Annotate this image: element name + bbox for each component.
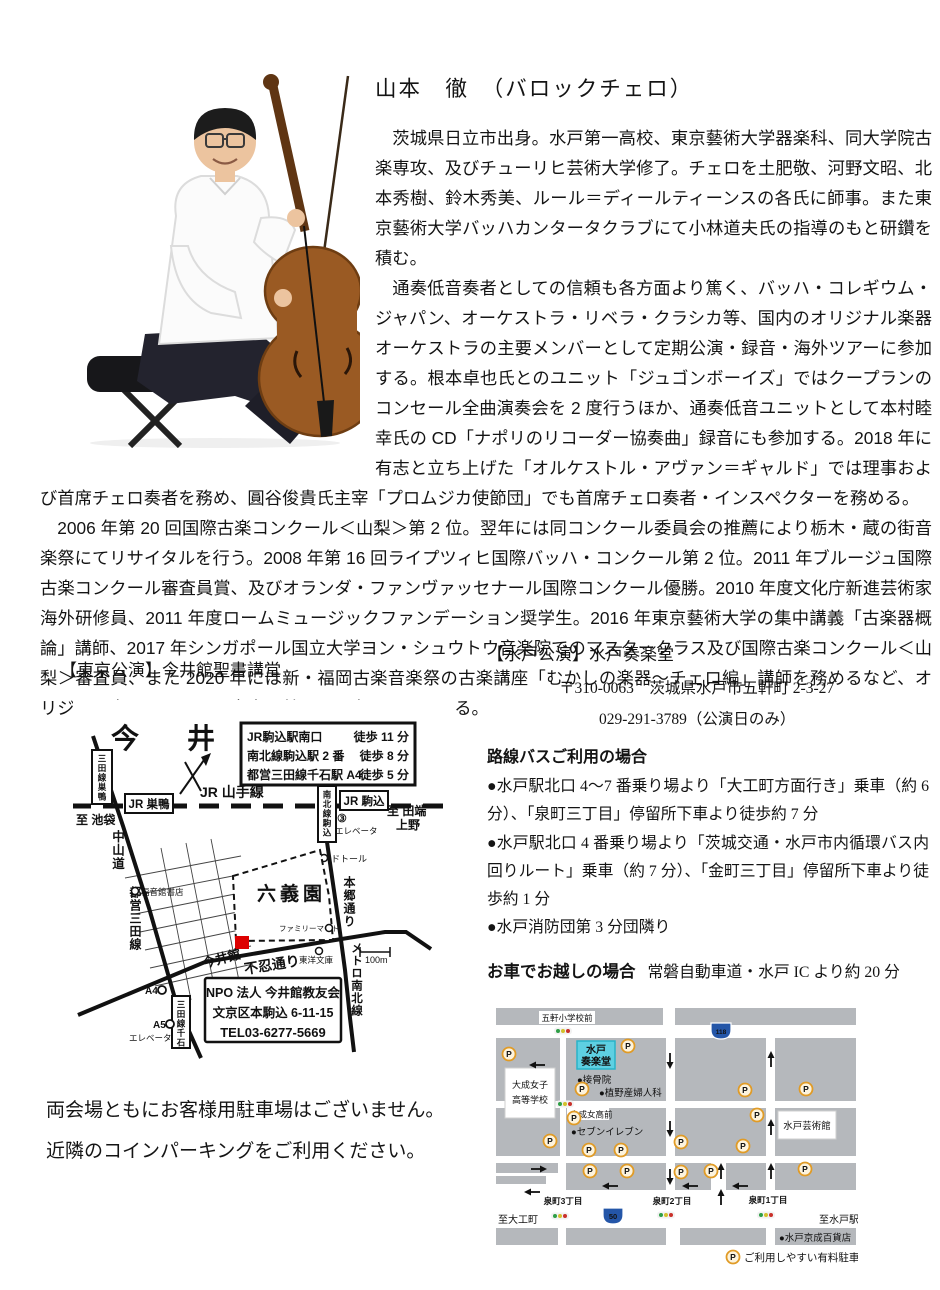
elevator-label: エレベータ	[335, 826, 378, 836]
parking-icon	[727, 1251, 740, 1264]
parking-icon	[584, 1165, 597, 1178]
parking-icon	[737, 1140, 750, 1153]
parking-icon	[544, 1135, 557, 1148]
nanboku-komagome-station: 南北線駒込	[318, 786, 336, 842]
traffic-light-icon	[657, 1212, 675, 1219]
to-ikebukuro-label: 至 池袋	[76, 812, 116, 827]
parking-note-line1: 両会場ともにお客様用駐車場はございません。	[46, 1090, 444, 1131]
hongo-dori-label: 本郷通り	[342, 875, 356, 928]
scale-label: 100m	[365, 955, 388, 965]
bus-stop-label: 五軒小学校前	[541, 1013, 593, 1023]
route-50-shield: 50	[603, 1208, 623, 1224]
jr-sugamo-station: JR 巣鴨	[125, 794, 173, 813]
to-daikumachi-label: 至大工町	[498, 1213, 538, 1226]
mitasen-sengoku-label: 三田線千石	[176, 1000, 186, 1048]
access-time: 徒歩 8 分	[359, 748, 409, 763]
sanfujinka-label: ●植野産婦人科	[599, 1087, 662, 1099]
fukuinkan-label: 福音館書店	[141, 887, 184, 897]
access-station: JR駒込駅南口	[247, 729, 322, 744]
bus-note: ●水戸駅北口 4～7 番乗り場より「大工町方面行き」乗車（約 6 分）、「泉町三…	[487, 773, 929, 830]
parking-icon	[568, 1112, 581, 1125]
tokyo-venue-heading: 【東京公演】今井館聖書講堂	[60, 656, 281, 681]
to-tabata-label: 至 田端	[387, 803, 426, 818]
bus-note: ●水戸消防団第 3 分団隣り	[487, 914, 929, 942]
access-time: 徒歩 5 分	[359, 767, 409, 782]
parking-icon	[576, 1083, 589, 1096]
parking-icon	[675, 1166, 688, 1179]
bio-section: 山本 徹 （バロックチェロ） 茨城県日立市出身。水戸第一高校、東京藝術大学器楽科…	[40, 66, 932, 723]
parking-note-line2: 近隣のコインパーキングをご利用ください。	[46, 1131, 444, 1172]
parking-legend-label: ご利用しやすい有料駐車場	[744, 1251, 858, 1264]
bus-access-heading: 路線バスご利用の場合	[487, 743, 929, 767]
venue-label-1: 水戸	[585, 1043, 606, 1056]
dotour-label: ドトール	[331, 854, 367, 864]
artist-photo	[75, 66, 360, 448]
venue-label-2: 奏楽堂	[580, 1055, 611, 1068]
mito-section: 【水戸公演】水戸奏楽堂 〒310-0063 茨城県水戸市五軒町 2-3-27 0…	[487, 640, 929, 982]
parking-icon	[622, 1040, 635, 1053]
exit-a5-marker	[166, 1020, 174, 1028]
school-label-2: 高等学校	[512, 1094, 548, 1105]
keisei-label: ●水戸京成百貨店	[779, 1232, 851, 1244]
npo-info-box: NPO 法人 今井館教友会 文京区本駒込 6-11-15 TEL03-6277-…	[205, 978, 341, 1042]
photo-shadow	[90, 438, 340, 448]
mitasen-sengoku-station: 三田線千石	[172, 996, 190, 1048]
car-access-heading: お車でお越しの場合	[487, 962, 636, 981]
exit-a4-marker	[158, 986, 166, 994]
bus-note: ●水戸駅北口 4 番乗り場より「茨城交通・水戸市内循環バス内回りルート」乗車（約…	[487, 830, 929, 915]
parking-icon	[503, 1048, 516, 1061]
npo-phone: TEL03-6277-5669	[220, 1025, 326, 1040]
ueno-label: 上野	[396, 817, 420, 832]
car-access-line: お車でお越しの場合常磐自動車道・水戸 IC より約 20 分	[487, 958, 929, 982]
parking-icon	[621, 1165, 634, 1178]
mitasen-sugamo-label: 三田線巣鴨	[97, 754, 107, 802]
mito-address: 〒310-0063 茨城県水戸市五軒町 2-3-27	[559, 676, 929, 698]
traffic-light-icon	[554, 1028, 572, 1035]
npo-name: NPO 法人 今井館教友会	[206, 985, 341, 1000]
access-time: 徒歩 11 分	[353, 729, 409, 744]
toyo-bunko-label: 東洋文庫	[299, 955, 334, 965]
parking-icon	[583, 1144, 596, 1157]
mito-phone: 029-291-3789（公演日のみ）	[599, 707, 929, 729]
mitasen-sugamo-station: 三田線巣鴨	[92, 750, 112, 804]
mito-venue-map: P 五軒小学校前 水戸 奏楽堂 ●接骨院 ●植野産婦人科	[493, 1008, 858, 1270]
car-access-note: 常磐自動車道・水戸 IC より約 20 分	[648, 964, 900, 981]
right-hand	[287, 209, 305, 227]
izumi3-label: 泉町3丁目	[543, 1196, 583, 1206]
toyo-bunko-marker	[316, 948, 323, 955]
route-118-number: 118	[716, 1029, 727, 1036]
access-box: JR駒込駅南口 徒歩 11 分 南北線駒込駅 2 番 徒歩 8 分 都営三田線千…	[241, 723, 415, 785]
izumi2-label: 泉町2丁目	[652, 1196, 692, 1206]
art-tower-building: 水戸芸術館	[778, 1111, 836, 1139]
access-station: 都営三田線千石駅 A4	[246, 767, 362, 782]
route-118-shield: 118	[711, 1023, 731, 1039]
tokyo-venue-map: JR 山手線 今 井 館 JR駒込駅南口 徒歩 11 分 南北線駒込駅 2 番 …	[73, 700, 453, 1072]
exit3-label: ③	[337, 813, 347, 825]
parking-icon	[799, 1163, 812, 1176]
artist-photo-wrap	[40, 66, 375, 464]
traffic-light-icon	[556, 1101, 574, 1108]
elevator-label-2: エレベータ	[129, 1033, 172, 1043]
mito-venue-heading: 【水戸公演】水戸奏楽堂	[487, 640, 929, 665]
traffic-light-icon	[757, 1212, 775, 1219]
bus-access-list: ●水戸駅北口 4～7 番乗り場より「大工町方面行き」乗車（約 6 分）、「泉町三…	[487, 773, 929, 943]
parking-icon	[751, 1109, 764, 1122]
exit-a4-label: A4	[145, 986, 158, 997]
route-50-number: 50	[609, 1212, 617, 1221]
fukuinkan-marker	[132, 888, 139, 895]
parking-icon	[800, 1083, 813, 1096]
parking-icon	[675, 1136, 688, 1149]
traffic-light-icon	[551, 1213, 569, 1220]
school-label-1: 大成女子	[512, 1079, 548, 1090]
parking-legend: ご利用しやすい有料駐車場	[727, 1251, 859, 1265]
jr-komagome-station: JR 駒込	[340, 791, 388, 810]
left-hand	[274, 289, 292, 307]
rikugien-label: 六義園	[257, 882, 326, 905]
jr-sugamo-label: JR 巣鴨	[129, 797, 170, 811]
exit-a5-label: A5	[153, 1020, 166, 1031]
metro-nanboku-label: メトロ南北線	[350, 942, 363, 1017]
familymart-marker	[326, 925, 333, 932]
taisei-school-building: 大成女子 高等学校	[505, 1068, 555, 1118]
parking-icon	[615, 1144, 628, 1157]
seven-eleven-label: ●セブンイレブン	[571, 1126, 643, 1138]
mito-sogakudo-marker: 水戸 奏楽堂	[577, 1041, 615, 1069]
art-tower-label: 水戸芸術館	[783, 1120, 831, 1132]
access-station: 南北線駒込駅 2 番	[247, 748, 345, 763]
izumi1-label: 泉町1丁目	[748, 1195, 788, 1205]
jr-komagome-label: JR 駒込	[344, 794, 385, 808]
to-mito-station-label: 至水戸駅	[819, 1214, 858, 1226]
parking-icon	[739, 1084, 752, 1097]
parking-note: 両会場ともにお客様用駐車場はございません。 近隣のコインパーキングをご利用くださ…	[46, 1090, 444, 1172]
nanboku-komagome-label: 南北線駒込	[322, 789, 332, 837]
parking-icon	[705, 1165, 718, 1178]
nakasendo-label: 中山道	[110, 829, 124, 871]
npo-address: 文京区本駒込 6-11-15	[213, 1005, 334, 1020]
flyer-page: { "artist": { "title": "山本 徹 （バロックチェロ）" …	[0, 0, 940, 1290]
